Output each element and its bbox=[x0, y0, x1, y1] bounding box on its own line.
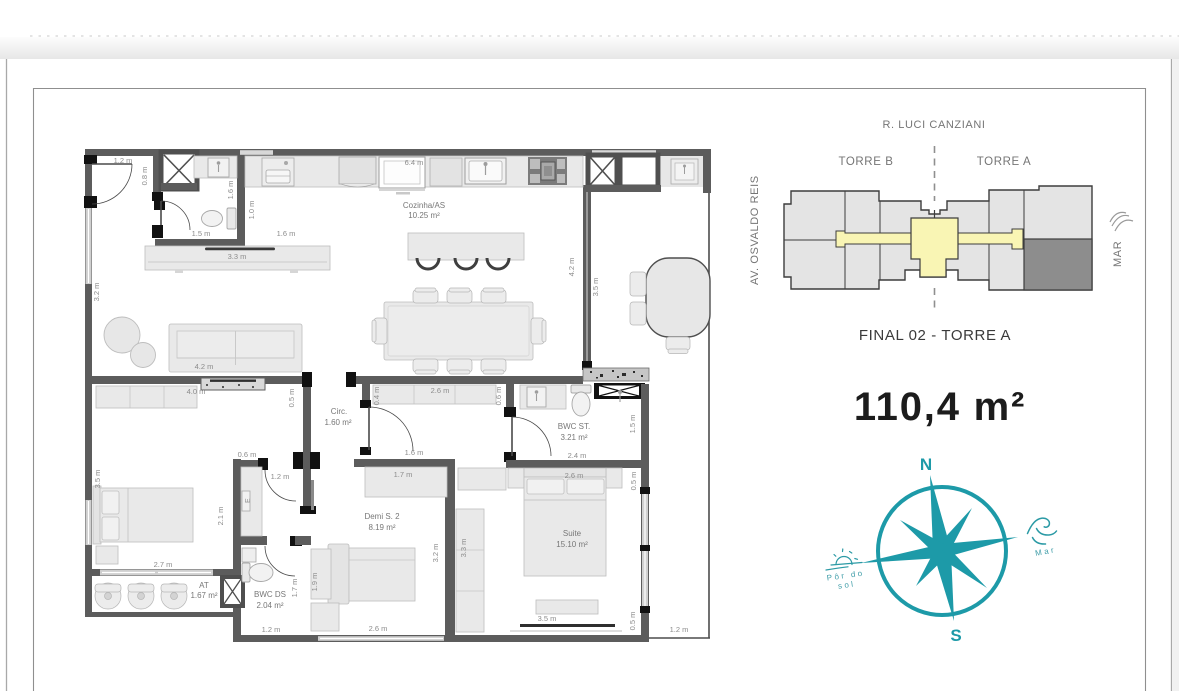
svg-text:1.6 m: 1.6 m bbox=[277, 229, 296, 238]
svg-text:0.5 m: 0.5 m bbox=[629, 472, 638, 491]
svg-text:6.4 m: 6.4 m bbox=[405, 158, 424, 167]
svg-text:1.7 m: 1.7 m bbox=[290, 579, 299, 598]
svg-text:1.7 m: 1.7 m bbox=[394, 470, 413, 479]
svg-text:R. LUCI CANZIANI: R. LUCI CANZIANI bbox=[882, 119, 985, 131]
svg-text:3.5 m: 3.5 m bbox=[93, 470, 102, 489]
svg-text:Cozinha/AS: Cozinha/AS bbox=[403, 201, 445, 210]
svg-text:1.6 m: 1.6 m bbox=[226, 181, 235, 200]
svg-text:1.2 m: 1.2 m bbox=[262, 625, 281, 634]
svg-text:1.67 m²: 1.67 m² bbox=[190, 591, 217, 600]
svg-text:3.5 m: 3.5 m bbox=[591, 278, 600, 297]
svg-text:1.5 m: 1.5 m bbox=[192, 229, 211, 238]
svg-text:4.0 m: 4.0 m bbox=[187, 387, 206, 396]
svg-text:FINAL 02 - TORRE A: FINAL 02 - TORRE A bbox=[859, 327, 1011, 344]
svg-text:4.2 m: 4.2 m bbox=[195, 362, 214, 371]
svg-text:2.1 m: 2.1 m bbox=[216, 507, 225, 526]
svg-text:2.6 m: 2.6 m bbox=[431, 386, 450, 395]
svg-text:1.2 m: 1.2 m bbox=[670, 625, 689, 634]
svg-text:E: E bbox=[245, 498, 252, 503]
svg-text:4.2 m: 4.2 m bbox=[567, 258, 576, 277]
svg-text:1.0 m: 1.0 m bbox=[247, 201, 256, 220]
svg-text:2.6 m: 2.6 m bbox=[565, 471, 584, 480]
svg-text:BWC ST.: BWC ST. bbox=[558, 422, 590, 431]
svg-text:3.2 m: 3.2 m bbox=[92, 283, 101, 302]
svg-text:8.19 m²: 8.19 m² bbox=[368, 523, 395, 532]
svg-text:3.3 m: 3.3 m bbox=[459, 539, 468, 558]
svg-text:N: N bbox=[920, 455, 932, 474]
svg-text:AV. OSVALDO REIS: AV. OSVALDO REIS bbox=[749, 175, 761, 285]
svg-text:3.3 m: 3.3 m bbox=[228, 252, 247, 261]
svg-text:0.4 m: 0.4 m bbox=[372, 387, 381, 406]
svg-text:AT: AT bbox=[199, 581, 209, 590]
svg-text:2.4 m: 2.4 m bbox=[568, 451, 587, 460]
svg-text:Suite: Suite bbox=[563, 529, 582, 538]
svg-text:2.04 m²: 2.04 m² bbox=[256, 601, 283, 610]
svg-text:0.6 m: 0.6 m bbox=[494, 387, 503, 406]
svg-text:1.6 m: 1.6 m bbox=[405, 448, 424, 457]
svg-text:Circ.: Circ. bbox=[331, 407, 347, 416]
svg-text:BWC DS: BWC DS bbox=[254, 590, 286, 599]
svg-text:3.2 m: 3.2 m bbox=[431, 544, 440, 563]
svg-text:2.6 m: 2.6 m bbox=[369, 624, 388, 633]
svg-text:Demi S. 2: Demi S. 2 bbox=[364, 512, 400, 521]
svg-text:110,4 m²: 110,4 m² bbox=[854, 385, 1026, 429]
svg-text:10.25 m²: 10.25 m² bbox=[408, 211, 440, 220]
svg-text:1.9 m: 1.9 m bbox=[310, 573, 319, 592]
svg-text:2.7 m: 2.7 m bbox=[154, 560, 173, 569]
svg-text:3.5 m: 3.5 m bbox=[538, 614, 557, 623]
svg-text:1.2 m: 1.2 m bbox=[114, 156, 133, 165]
svg-text:TORRE A: TORRE A bbox=[977, 156, 1031, 168]
svg-text:0.8 m: 0.8 m bbox=[140, 167, 149, 186]
svg-text:1.2 m: 1.2 m bbox=[271, 472, 290, 481]
svg-text:0.5 m: 0.5 m bbox=[287, 389, 296, 408]
svg-text:0.6 m: 0.6 m bbox=[238, 450, 257, 459]
svg-text:MAR: MAR bbox=[1112, 241, 1124, 267]
svg-text:S: S bbox=[950, 626, 961, 645]
svg-text:TORRE B: TORRE B bbox=[838, 156, 893, 168]
svg-text:1.60 m²: 1.60 m² bbox=[324, 418, 351, 427]
svg-text:0.5 m: 0.5 m bbox=[628, 612, 637, 631]
svg-text:15.10 m²: 15.10 m² bbox=[556, 540, 588, 549]
svg-text:1.5 m: 1.5 m bbox=[628, 415, 637, 434]
svg-text:3.21 m²: 3.21 m² bbox=[560, 433, 587, 442]
